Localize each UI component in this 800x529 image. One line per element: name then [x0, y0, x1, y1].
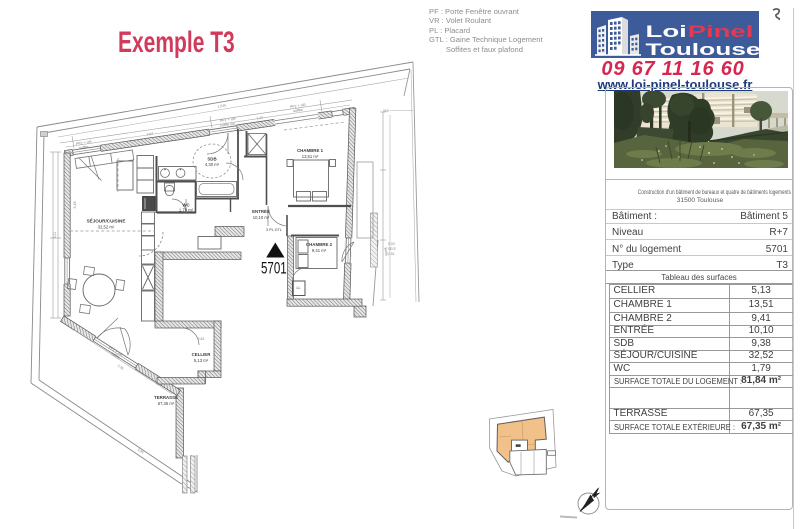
svg-text:1,79 m²: 1,79 m²	[179, 208, 194, 213]
svg-text:ENTRÉE: ENTRÉE	[252, 209, 270, 214]
svg-text:3 PL GTL: 3 PL GTL	[266, 228, 282, 232]
svg-text:SÉJOUR/CUISINE: SÉJOUR/CUISINE	[87, 217, 126, 224]
svg-text:SDB: SDB	[207, 157, 216, 162]
svg-text:CHAMBRE 2: CHAMBRE 2	[306, 242, 333, 247]
svg-text:13,51 m²: 13,51 m²	[302, 154, 319, 159]
svg-text:SE/S: SE/S	[388, 247, 396, 251]
svg-text:32,52 m²: 32,52 m²	[98, 225, 115, 230]
svg-text:9,49: 9,49	[137, 448, 145, 455]
svg-text:LL: LL	[297, 286, 301, 290]
svg-text:5,13 m²: 5,13 m²	[194, 358, 209, 363]
svg-text:5701: 5701	[261, 260, 287, 279]
svg-text:3,94: 3,94	[146, 132, 153, 137]
svg-text:4,11: 4,11	[53, 232, 57, 238]
svg-text:TERRASSE: TERRASSE	[154, 395, 178, 400]
svg-text:2,63: 2,63	[198, 337, 205, 341]
svg-text:Toulouse: Toulouse	[646, 40, 760, 58]
svg-text:67,35 m²: 67,35 m²	[158, 401, 175, 406]
svg-text:9,41 m²: 9,41 m²	[312, 248, 327, 253]
svg-text:2,35: 2,35	[117, 364, 125, 371]
svg-text:3,45: 3,45	[73, 202, 77, 209]
svg-text:10,10 m²: 10,10 m²	[253, 215, 270, 220]
svg-text:2,51: 2,51	[388, 252, 395, 256]
svg-text:CHAMBRE 1: CHAMBRE 1	[297, 148, 324, 153]
svg-text:5,03: 5,03	[388, 242, 395, 246]
svg-text:CELLIER: CELLIER	[192, 352, 212, 357]
svg-text:4,30 m²: 4,30 m²	[205, 162, 220, 167]
svg-text:1,545: 1,545	[217, 103, 226, 108]
svg-text:1,40: 1,40	[256, 116, 263, 121]
svg-text:560: 560	[383, 109, 389, 113]
svg-text:LoiPinel: LoiPinel	[646, 21, 754, 40]
